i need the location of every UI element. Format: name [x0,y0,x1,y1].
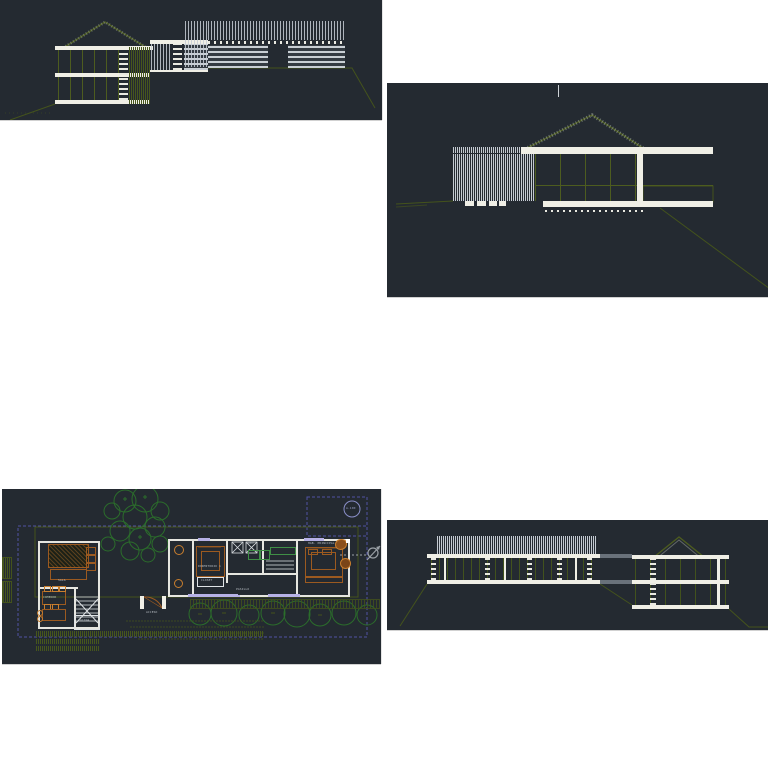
chair [52,586,59,592]
deck-edge [190,595,240,597]
sink-fixture [260,550,270,560]
siding-band-left [208,45,268,68]
toilet-fixture [248,550,260,560]
room-label-comedor: COMEDOR [43,596,56,599]
louver-ladder-column [119,50,128,100]
edge-hatch [2,581,12,603]
ground-line [396,201,768,289]
hatched-column [650,559,656,605]
plant-pot [174,545,184,555]
datum-tick [558,85,559,97]
bed-bench [305,577,343,583]
transom-line [535,185,713,186]
white-post [444,558,446,580]
chair [44,586,51,592]
white-post [717,559,720,605]
slat-ladder [173,44,182,70]
column [485,558,490,580]
room-label-hab-principal: HAB. PRINCIPAL [308,542,335,545]
living-rug [48,544,89,568]
side-table [42,609,66,621]
room-label-dormitorio1: DORMITORIO 1 [198,565,221,568]
room-label-closet: CLOSET [201,579,212,582]
canvas: { "document": { "kind": "cad-drawing-she… [0,0,768,768]
footing [499,201,506,206]
column [527,558,532,580]
room-label-bano: BAÑO [246,542,254,545]
wall [38,541,100,543]
column-marker [346,539,350,543]
wall [226,539,228,583]
terrace-outline [643,186,713,202]
stool [37,616,43,622]
door-jamb [140,596,144,609]
hidden-edge-dots [545,210,645,212]
viewport-elevation-east[interactable] [387,520,768,630]
column [431,558,436,580]
edge-hatch [2,557,12,579]
column [587,558,592,580]
ground-hatch-strip [36,631,264,637]
white-column [637,153,643,203]
floor-slab [427,580,600,584]
louver-strip [151,44,171,70]
green-wall-hatch [129,47,150,104]
siding-band-right [288,45,345,68]
viewport-floor-plan[interactable]: SALA COMEDOR COCINA ACCESO DORMITORIO 1 … [2,489,381,664]
base-line [150,70,208,72]
gable-roof-outline [63,22,147,48]
ground-hatch-strip [36,639,100,644]
door-jamb [162,596,166,609]
floor-slab [543,201,713,207]
wall [168,539,170,597]
sofa [50,569,87,580]
footing [489,201,497,206]
footing [477,201,486,206]
armchair [86,563,96,571]
room-label-pasillo: PASILLO [236,588,249,591]
bed-1-mattress [201,551,220,571]
floor-slab [632,580,729,584]
armchair [86,555,96,563]
chair [59,586,66,592]
wall [296,539,298,597]
room-label-sala: SALA [58,579,66,582]
ground-hatch-strip [36,646,100,651]
ground-slab [632,605,729,609]
white-post [575,558,577,580]
armchair [86,547,96,555]
roof-slab [521,147,713,154]
north-opening [198,538,210,541]
roof-louver-field [208,21,345,40]
viewport-elevation-west[interactable] [0,0,382,120]
entry-door-swing [144,597,162,608]
viewport-elevation-north[interactable] [387,83,768,297]
planting-strip [190,599,380,609]
pillow [308,549,318,555]
plant-pot [340,558,351,569]
louver-cap-bar [453,147,521,153]
plant-pot [174,579,183,588]
south-glazing-wall [268,594,300,597]
counter [270,547,296,555]
white-post [504,558,506,580]
footing [465,201,474,206]
tall-louver-column [185,21,208,67]
kitchen-room-outline [74,615,100,630]
bridge-slab [600,580,632,584]
gable-roof-outline [525,115,646,150]
fastener-dot-row [208,41,345,44]
glazing-mullions [535,154,641,201]
room-label-cocina: COCINA [78,619,89,622]
column [557,558,562,580]
pillow [322,549,332,555]
room-label-acceso: ACCESO [146,611,157,614]
wall [228,573,298,575]
glazing-mullions [431,558,597,580]
wall [192,539,194,597]
sheet-bubble-label: A-100 [346,507,356,510]
bridge-slab [600,554,632,558]
kitchen-shelving [266,561,294,569]
louver-screen-block [453,154,535,201]
roof-louver-band [437,536,597,554]
